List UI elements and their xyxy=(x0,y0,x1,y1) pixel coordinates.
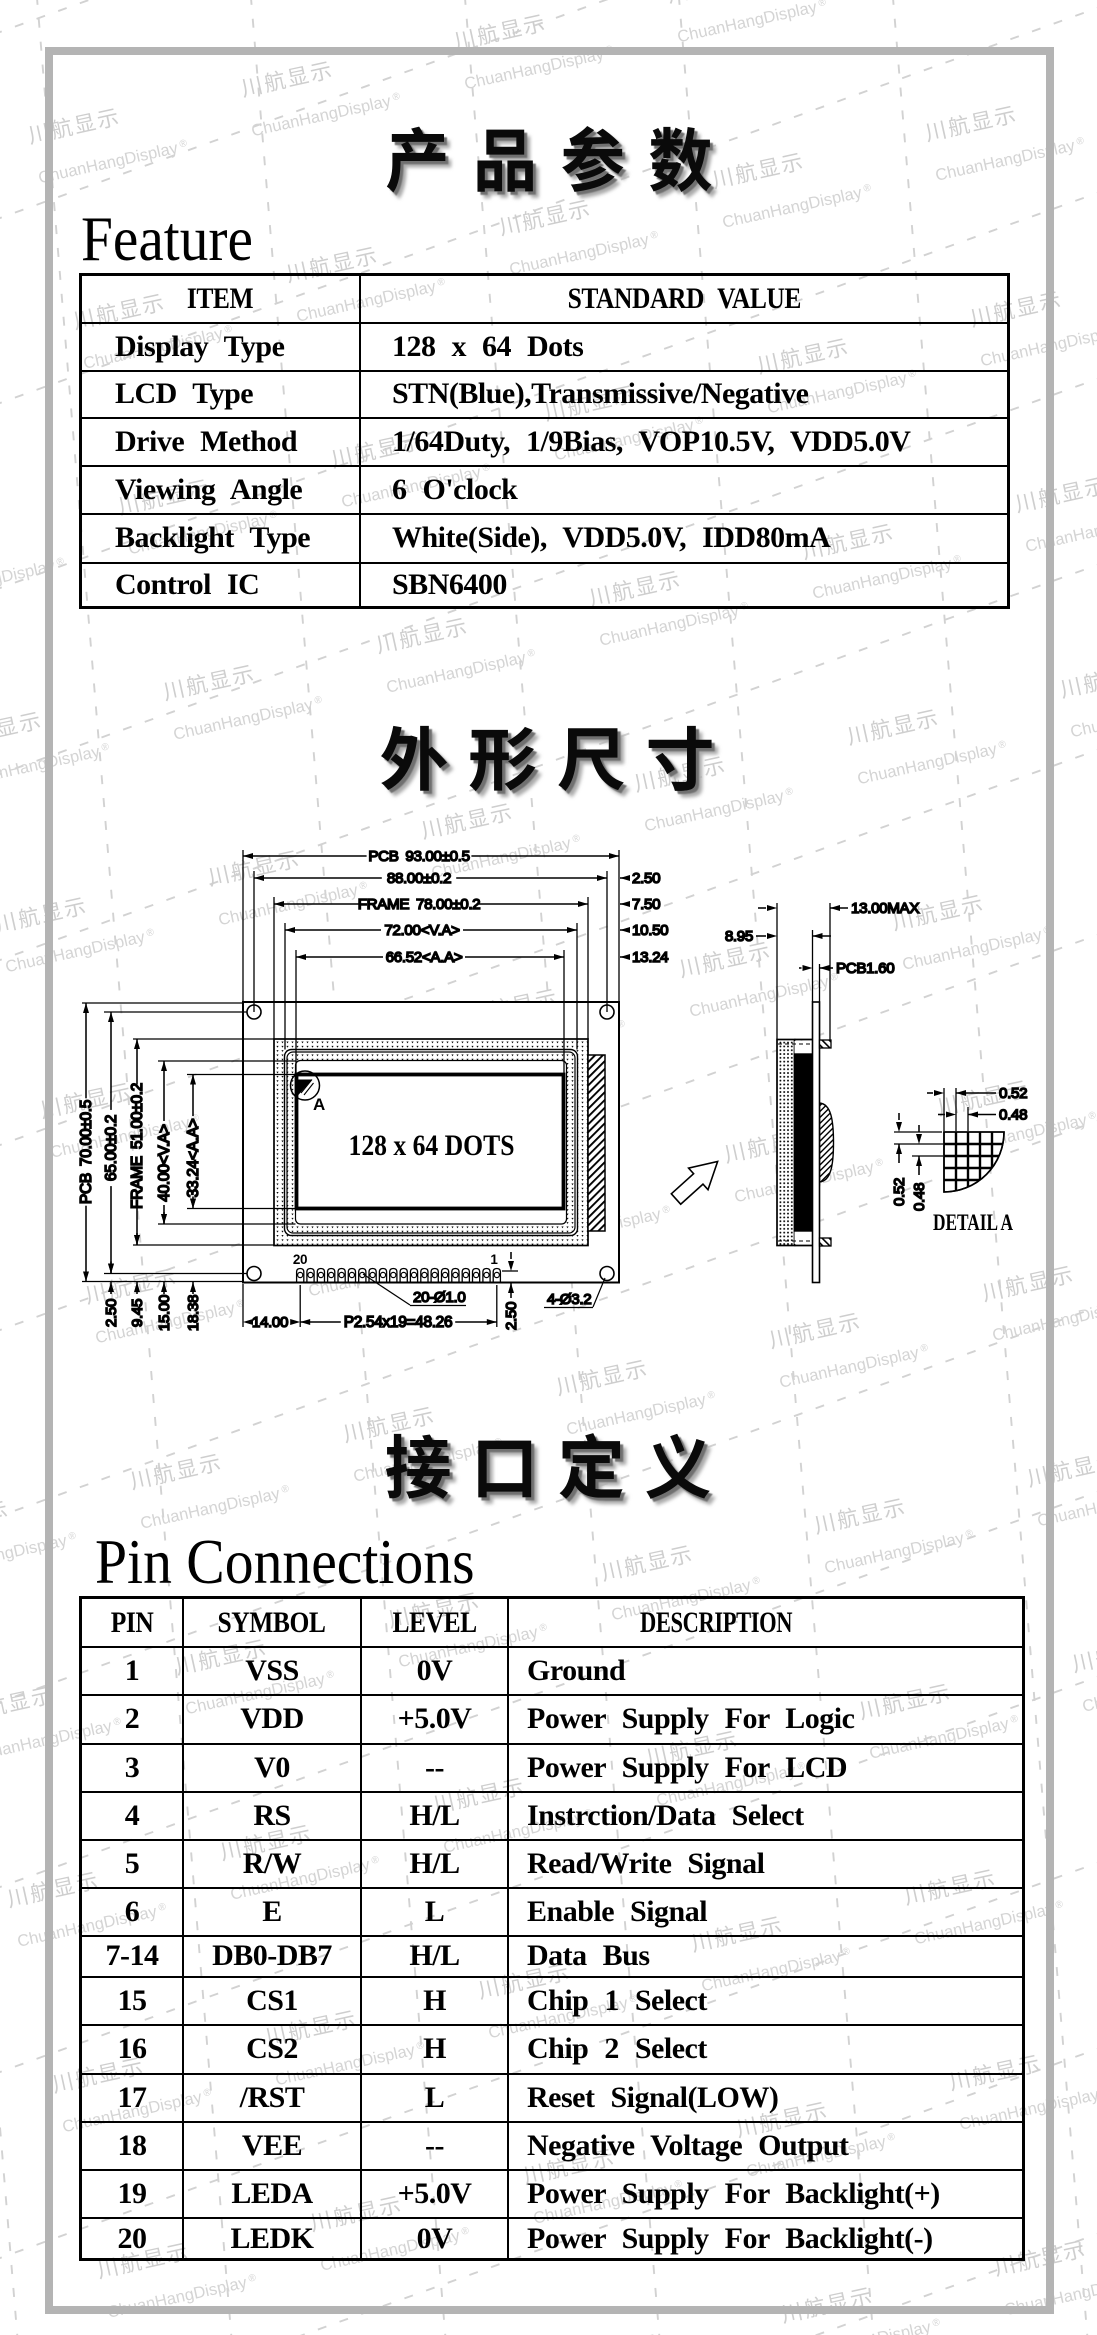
svg-text:PCB1.60: PCB1.60 xyxy=(836,960,894,977)
svg-text:P2.54x19=48.26: P2.54x19=48.26 xyxy=(344,1314,452,1331)
svg-text:15.00: 15.00 xyxy=(156,1295,173,1331)
svg-text:33.24<A.A>: 33.24<A.A> xyxy=(185,1118,202,1197)
svg-text:40.00<V.A>: 40.00<V.A> xyxy=(156,1124,173,1202)
svg-text:72.00<V.A>: 72.00<V.A> xyxy=(384,922,460,939)
svg-text:13.24: 13.24 xyxy=(632,949,668,966)
svg-text:13.00MAX: 13.00MAX xyxy=(851,900,919,917)
svg-text:FRAME 78.00±0.2: FRAME 78.00±0.2 xyxy=(358,896,481,913)
svg-text:0.52: 0.52 xyxy=(891,1178,908,1206)
svg-text:2.50: 2.50 xyxy=(632,870,660,887)
svg-text:20: 20 xyxy=(293,1252,307,1267)
svg-text:2.50: 2.50 xyxy=(103,1299,120,1327)
svg-text:20-Ø1.0: 20-Ø1.0 xyxy=(413,1289,465,1306)
svg-text:4-Ø3.2: 4-Ø3.2 xyxy=(547,1291,591,1308)
svg-text:0.48: 0.48 xyxy=(911,1183,928,1211)
svg-text:PCB 93.00±0.5: PCB 93.00±0.5 xyxy=(368,848,469,865)
svg-text:2.50: 2.50 xyxy=(503,1302,520,1330)
svg-text:PCB 70.00±0.5: PCB 70.00±0.5 xyxy=(78,1099,95,1204)
svg-text:14.00: 14.00 xyxy=(252,1314,288,1331)
svg-text:65.00±0.2: 65.00±0.2 xyxy=(103,1115,120,1181)
svg-text:1: 1 xyxy=(490,1252,498,1267)
svg-text:18.38: 18.38 xyxy=(185,1295,202,1331)
svg-text:0.48: 0.48 xyxy=(999,1107,1027,1124)
svg-text:128 x 64 DOTS: 128 x 64 DOTS xyxy=(349,1130,515,1162)
svg-text:A: A xyxy=(313,1095,325,1114)
svg-text:10.50: 10.50 xyxy=(632,922,668,939)
svg-text:FRAME 51.00±0.2: FRAME 51.00±0.2 xyxy=(129,1083,146,1209)
svg-text:9.45: 9.45 xyxy=(129,1299,146,1327)
svg-text:DETAIL A: DETAIL A xyxy=(933,1210,1013,1235)
svg-text:66.52<A.A>: 66.52<A.A> xyxy=(386,949,463,966)
svg-text:8.95: 8.95 xyxy=(725,928,753,945)
svg-text:7.50: 7.50 xyxy=(632,896,660,913)
svg-text:88.00±0.2: 88.00±0.2 xyxy=(387,870,451,887)
svg-text:0.52: 0.52 xyxy=(999,1085,1027,1102)
